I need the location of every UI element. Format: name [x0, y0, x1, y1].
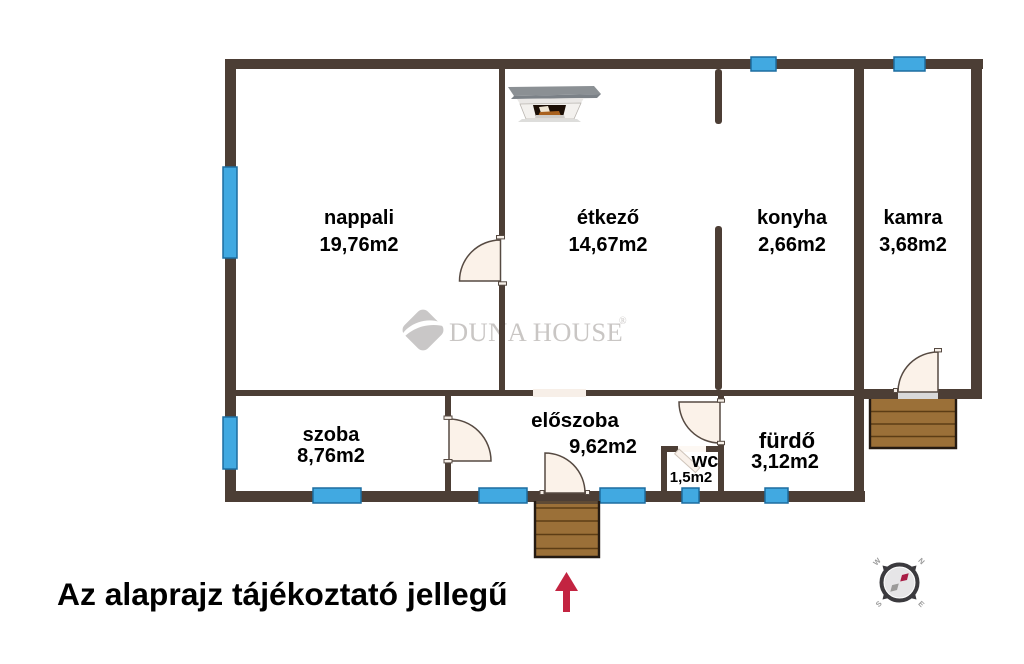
- svg-text:N: N: [916, 556, 926, 566]
- svg-text:DUNA HOUSE: DUNA HOUSE: [449, 317, 623, 347]
- svg-text:E: E: [916, 599, 926, 609]
- svg-text:S: S: [874, 599, 884, 609]
- svg-text:®: ®: [619, 316, 627, 327]
- svg-text:W: W: [871, 555, 883, 567]
